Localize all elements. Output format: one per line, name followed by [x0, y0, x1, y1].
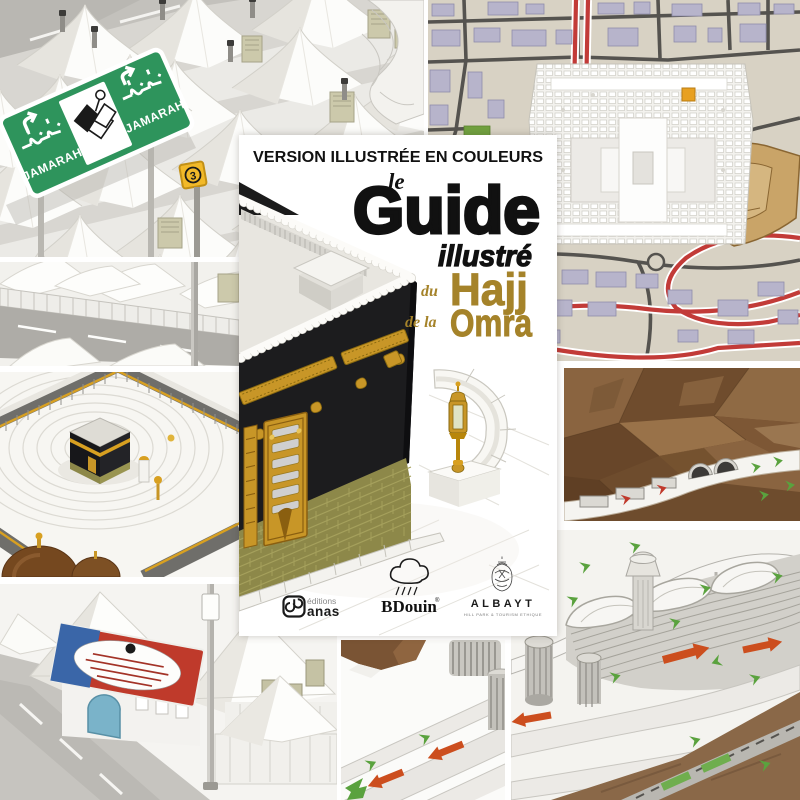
svg-text:®: ® — [435, 597, 440, 604]
svg-text:VERSION ILLUSTRÉE EN COULEURS: VERSION ILLUSTRÉE EN COULEURS — [253, 147, 543, 166]
svg-text:anas: anas — [307, 604, 340, 619]
svg-text:BDouin: BDouin — [381, 597, 437, 616]
svg-text:ALBAYT: ALBAYT — [471, 598, 536, 610]
svg-text:Omra: Omra — [450, 303, 533, 345]
svg-text:du: du — [421, 283, 438, 300]
svg-text:HILL PARK & TOURISM ETHIQUE: HILL PARK & TOURISM ETHIQUE — [464, 612, 542, 617]
svg-text:de la: de la — [405, 314, 437, 331]
svg-text:Guide: Guide — [353, 173, 540, 247]
